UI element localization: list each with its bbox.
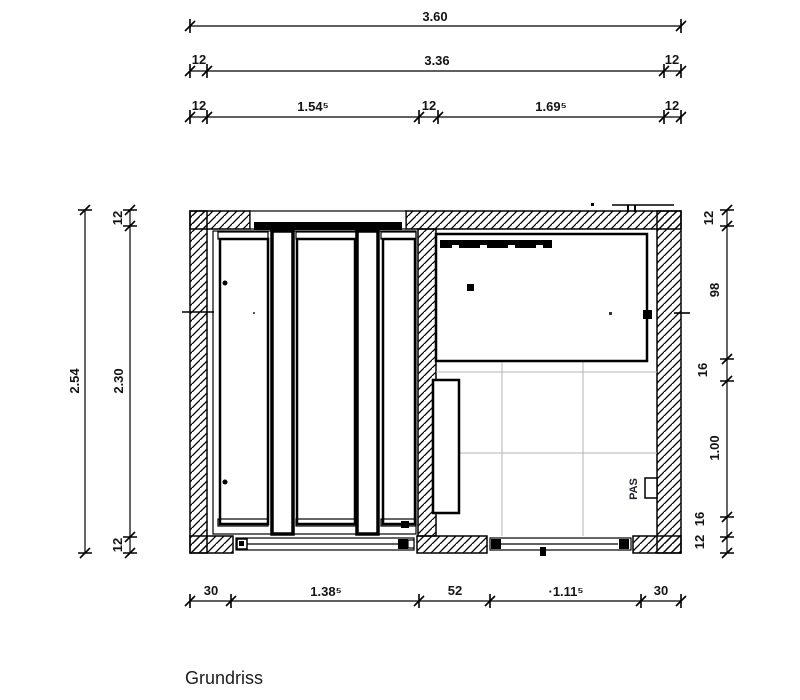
dim-label-top-row3-0: 12 [192,98,206,113]
dim-label-right-1: 98 [707,283,722,297]
dim-label-top-row3-2: 12 [422,98,436,113]
window-track-bar [254,222,402,230]
dim-label-right-5: 12 [692,535,707,549]
bottom-wall-right-segment [633,536,681,553]
dim-label-top-row3-1: 1.54⁵ [297,99,328,114]
socket-label: PAS [628,478,640,500]
dim-label-top-row3-3: 1.69⁵ [535,99,566,114]
dim-label-right-3: 1.00 [707,435,722,460]
bottom-dimension-chain: 30 1.38⁵ 52 ·1.11⁵ 30 [185,583,686,608]
top-wall-right-segment [406,211,681,229]
floor-plan-drawing: 3.60 12 3.36 12 12 1.54⁵ 12 1.69⁵ 12 2.5… [0,0,800,700]
bottom-track-right [490,538,631,556]
dim-label-bottom-4: 30 [654,583,668,598]
socket-pas: PAS [628,478,657,500]
dim-label-top-row2-2: 12 [665,52,679,67]
door-leaf [433,380,459,513]
dim-label-right-0: 12 [701,211,716,225]
top-window [250,211,406,230]
floor-plan-page: 3.60 12 3.36 12 12 1.54⁵ 12 1.69⁵ 12 2.5… [0,0,800,700]
cabinet-door-panel-3 [383,239,415,524]
track-center-mark [540,547,546,556]
dim-label-right-4: 16 [692,512,707,526]
dim-label-bottom-1: 1.38⁵ [310,584,341,599]
bench-edge-block [643,310,652,319]
tiled-floor [436,361,657,536]
dim-label-bottom-2: 52 [448,583,462,598]
cabinet-door-panel-2 [297,239,355,524]
cabinet-column-2 [357,231,378,534]
cabinet-column-1 [272,231,293,534]
hinge-dot [223,281,228,286]
dim-label-left-inner-2: 12 [110,538,125,552]
dim-label-top-row3-4: 12 [665,98,679,113]
dim-label-left-outer: 2.54 [67,368,82,394]
left-wall [190,211,207,553]
dim-label-right-2: 16 [695,363,710,377]
dim-label-top-total: 3.60 [422,9,447,24]
right-dimension-chain: 12 98 16 1.00 16 12 [692,205,734,558]
dim-label-top-row2-1: 3.36 [424,53,449,68]
cabinet-unit [213,231,416,534]
hinge-dot [223,480,228,485]
top-dimension-chain: 3.60 12 3.36 12 12 1.54⁵ 12 1.69⁵ 12 [185,9,686,124]
left-dimension-chain: 2.54 12 2.30 12 [67,205,137,558]
drawing-title: Grundriss [185,668,263,688]
bench [436,234,652,361]
bottom-wall-left-segment [190,536,233,553]
dim-label-bottom-0: 30 [204,583,218,598]
dim-label-left-inner-1: 2.30 [111,368,126,393]
bottom-track-left [236,538,414,550]
bottom-wall-middle-segment [417,536,487,553]
dim-label-top-row2-0: 12 [192,52,206,67]
bench-dot [467,284,474,291]
right-wall [657,211,681,553]
dim-label-left-inner-0: 12 [110,211,125,225]
dim-label-bottom-3: ·1.11⁵ [548,584,583,599]
